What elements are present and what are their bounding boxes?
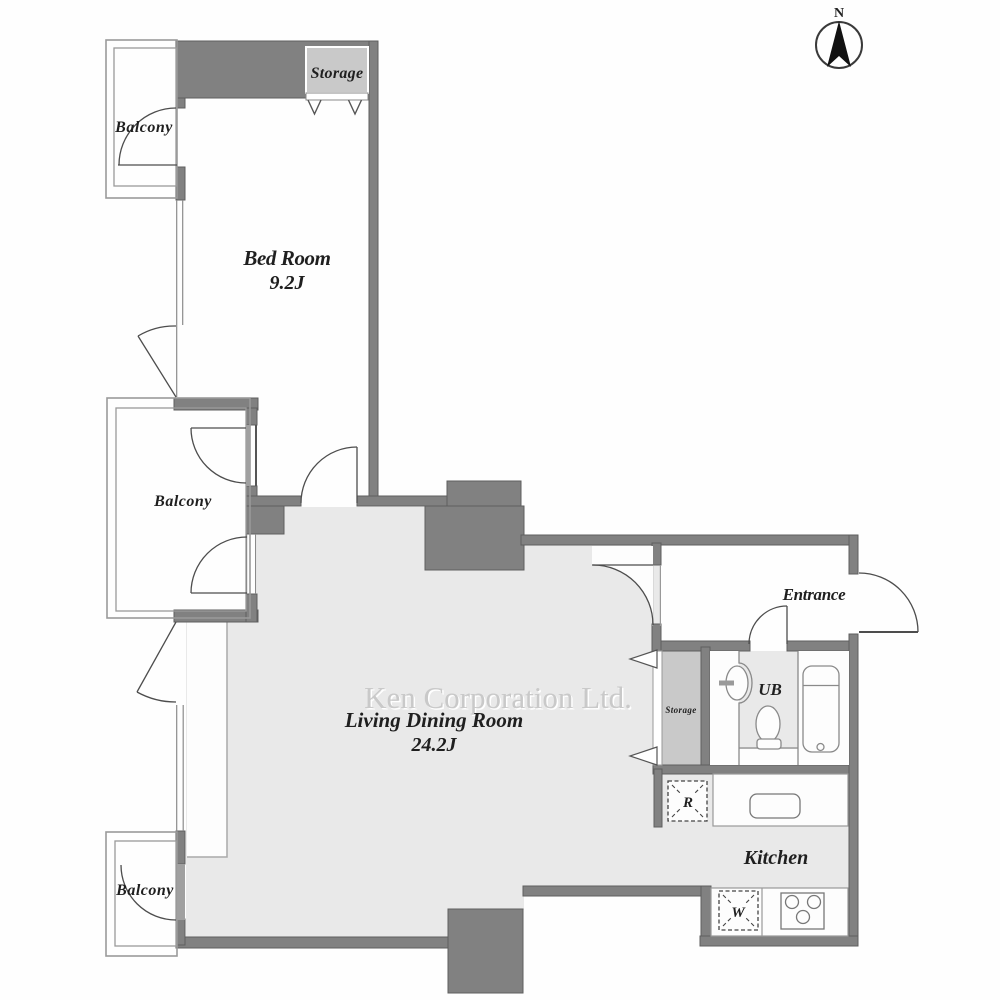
svg-text:24.2J: 24.2J — [411, 734, 458, 756]
svg-text:Entrance: Entrance — [782, 585, 847, 604]
svg-text:N: N — [834, 6, 844, 21]
svg-text:Balcony: Balcony — [115, 882, 174, 899]
svg-text:R: R — [682, 795, 693, 811]
svg-text:Living Dining Room: Living Dining Room — [344, 708, 524, 732]
svg-text:Bed Room: Bed Room — [242, 246, 330, 270]
svg-text:Balcony: Balcony — [114, 119, 173, 136]
svg-text:Storage: Storage — [311, 65, 364, 82]
svg-text:W: W — [731, 905, 746, 921]
svg-text:9.2J: 9.2J — [270, 272, 306, 294]
svg-text:Kitchen: Kitchen — [743, 847, 808, 869]
svg-text:Storage: Storage — [665, 705, 696, 715]
svg-text:UB: UB — [758, 680, 782, 699]
svg-text:Balcony: Balcony — [153, 493, 212, 510]
